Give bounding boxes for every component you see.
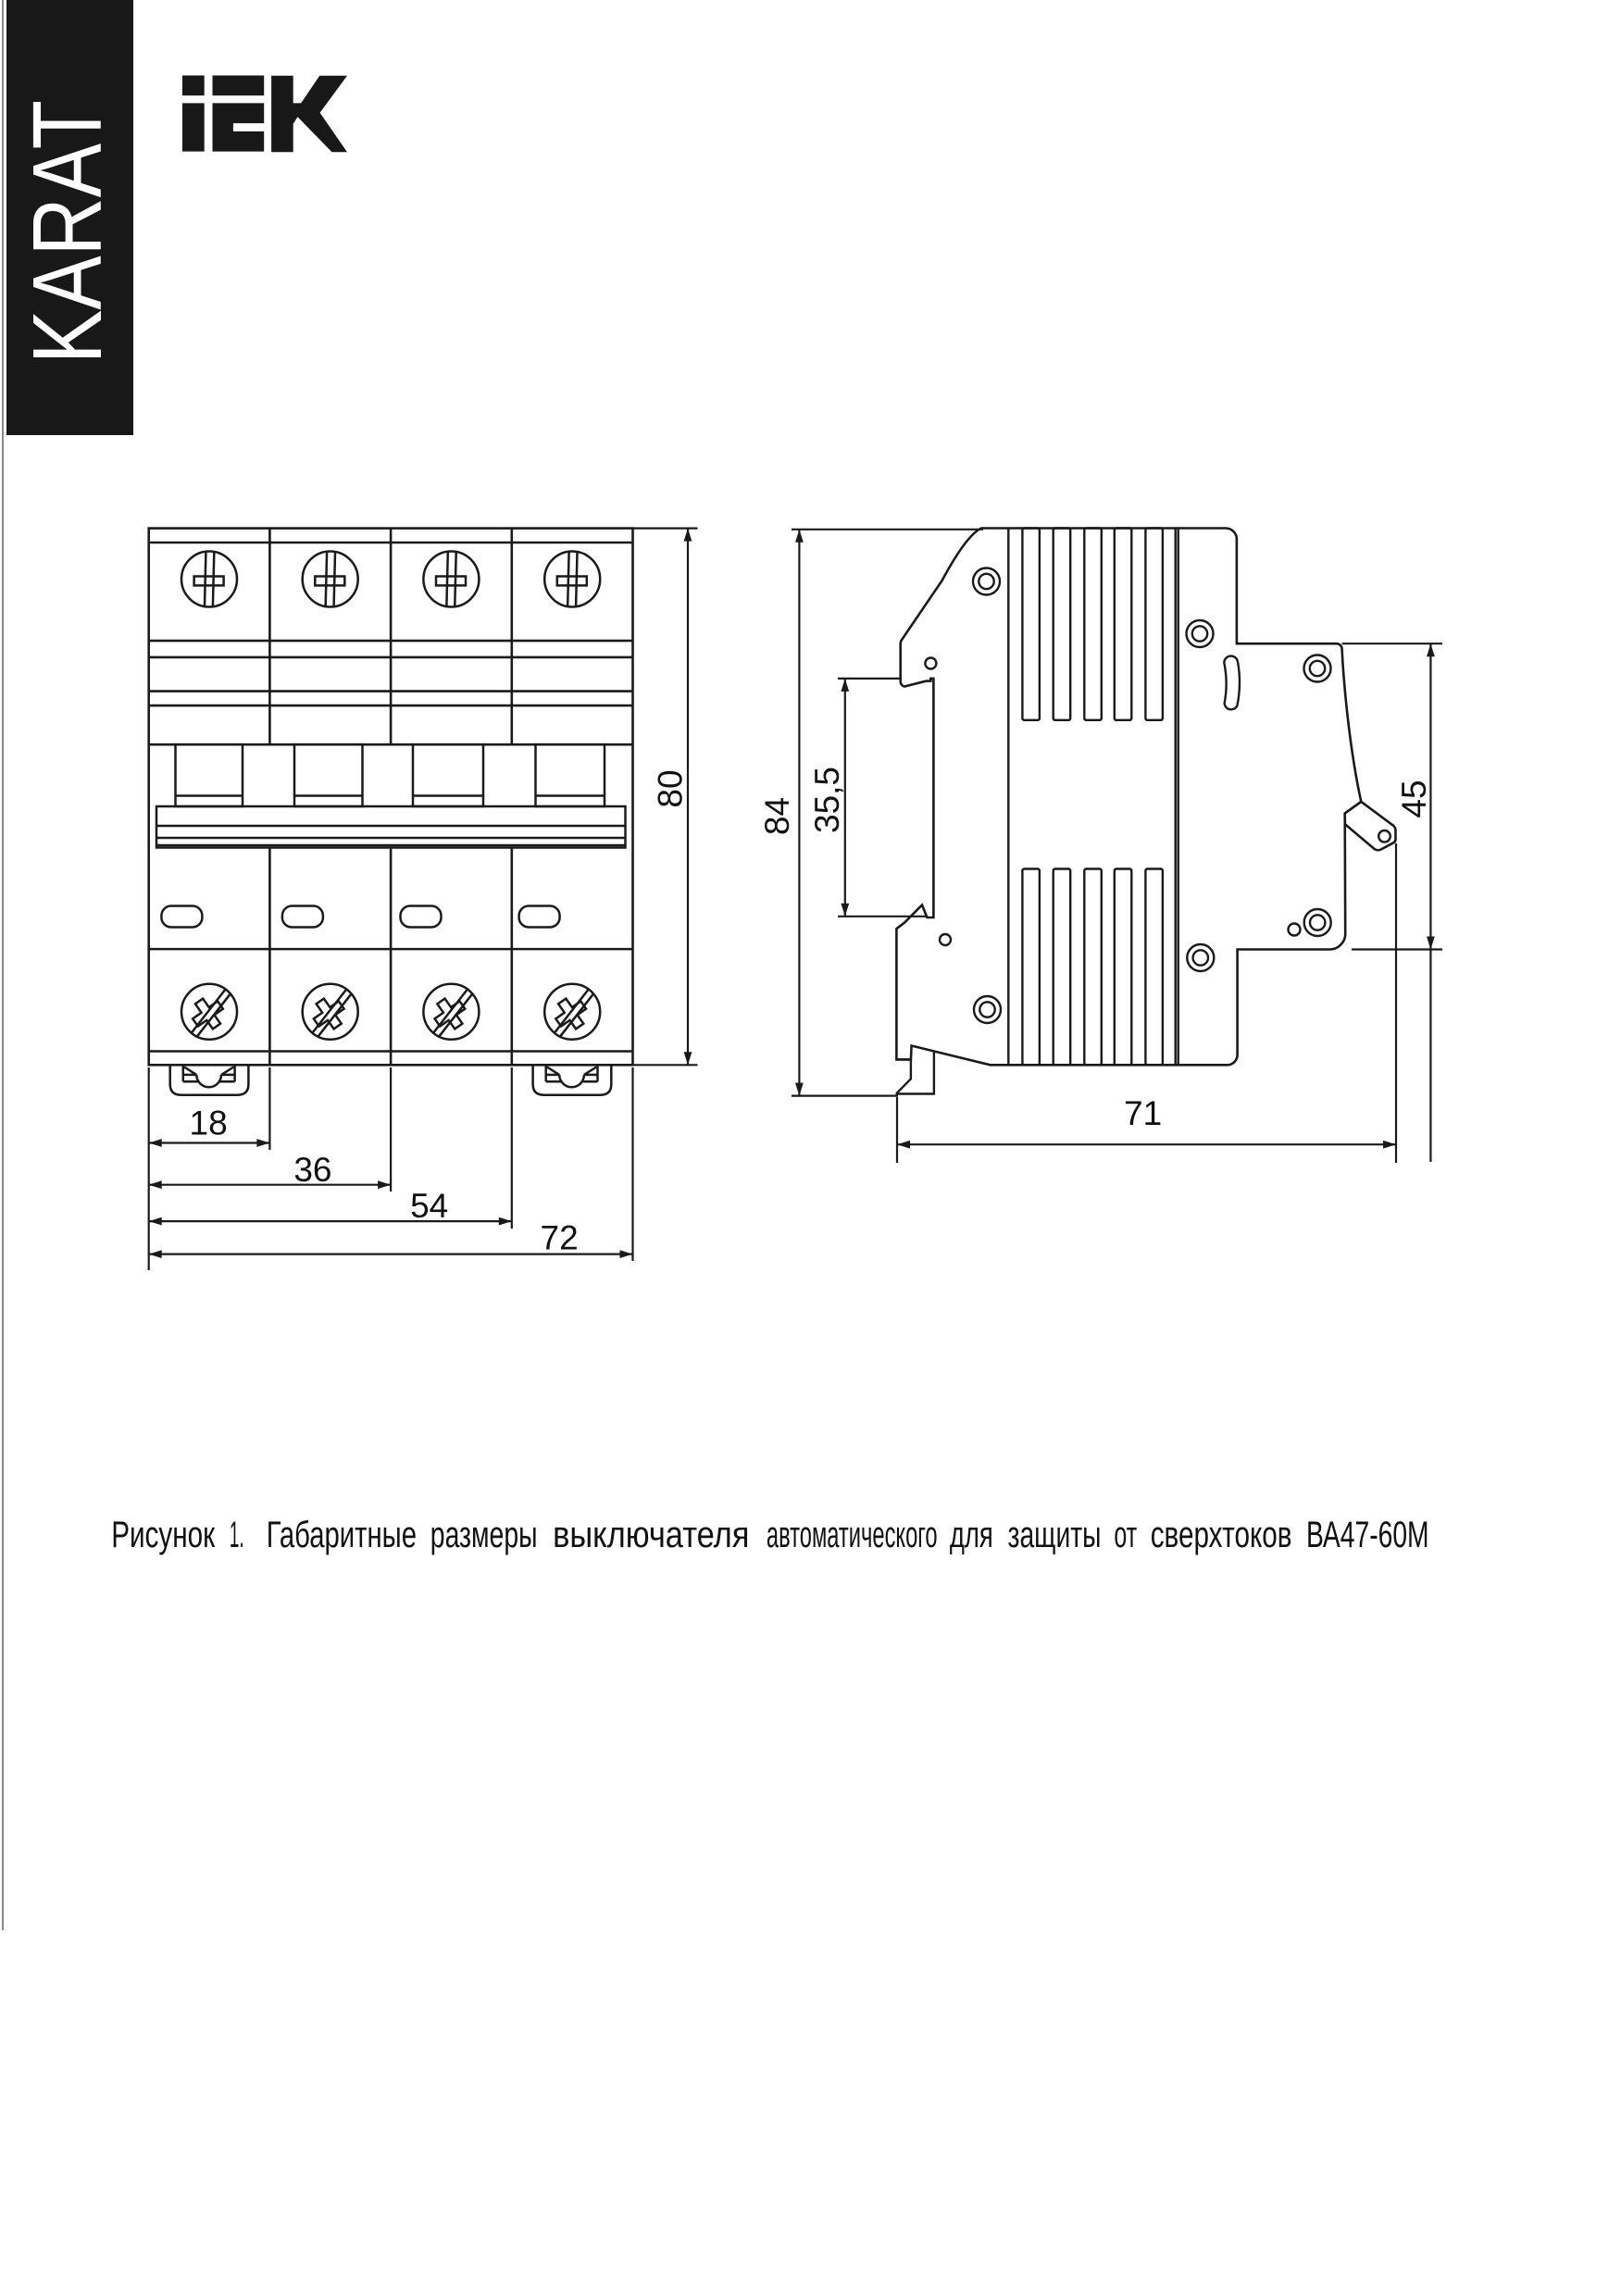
svg-text:35,5: 35,5 (808, 767, 846, 833)
svg-text:Габаритные: Габаритные (267, 1515, 417, 1555)
svg-text:Рисунок: Рисунок (111, 1515, 215, 1555)
svg-text:ВА47-60М: ВА47-60М (1306, 1515, 1429, 1555)
svg-text:сверхтоков: сверхтоков (1151, 1515, 1292, 1555)
svg-text:54: 54 (410, 1187, 448, 1225)
svg-text:18: 18 (190, 1104, 228, 1142)
svg-text:36: 36 (293, 1151, 331, 1189)
svg-text:для: для (950, 1515, 993, 1555)
svg-text:1.: 1. (230, 1515, 244, 1555)
svg-text:72: 72 (541, 1219, 579, 1257)
svg-text:45: 45 (1395, 780, 1433, 817)
svg-text:от: от (1114, 1515, 1137, 1555)
svg-text:80: 80 (652, 769, 690, 807)
svg-text:автоматического: автоматического (767, 1515, 938, 1555)
svg-text:71: 71 (1124, 1094, 1162, 1132)
svg-text:выключателя: выключателя (553, 1515, 749, 1555)
svg-text:защиты: защиты (1008, 1515, 1102, 1555)
svg-text:84: 84 (758, 797, 796, 835)
svg-text:KARAT: KARAT (13, 100, 122, 364)
svg-text:размеры: размеры (430, 1515, 538, 1555)
